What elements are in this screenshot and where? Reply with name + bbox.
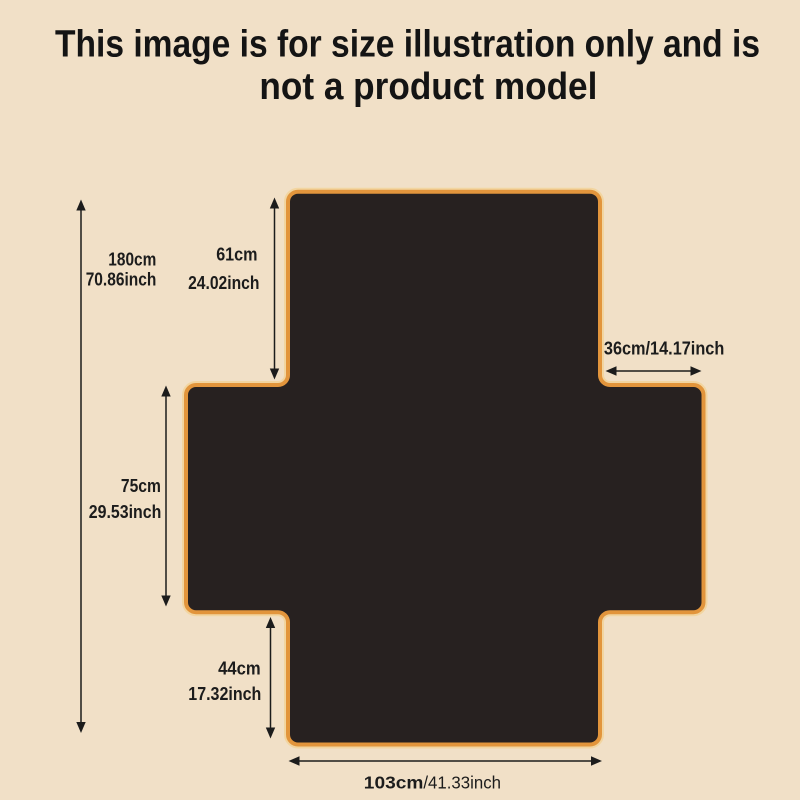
svg-text:75cm: 75cm	[121, 476, 161, 496]
svg-text:not a product model: not a product model	[259, 66, 597, 108]
svg-text:29.53inch: 29.53inch	[89, 502, 162, 522]
svg-text:36cm/14.17inch: 36cm/14.17inch	[604, 339, 724, 359]
svg-text:61cm: 61cm	[216, 245, 257, 265]
svg-text:This image is for size illustr: This image is for size illustration only…	[55, 23, 760, 65]
svg-text:44cm: 44cm	[218, 658, 261, 678]
svg-text:70.86inch: 70.86inch	[86, 269, 157, 289]
svg-text:24.02inch: 24.02inch	[188, 273, 259, 293]
svg-text:103cm/41.33inch: 103cm/41.33inch	[364, 772, 501, 792]
svg-text:180cm: 180cm	[108, 250, 156, 270]
svg-text:17.32inch: 17.32inch	[188, 684, 261, 704]
